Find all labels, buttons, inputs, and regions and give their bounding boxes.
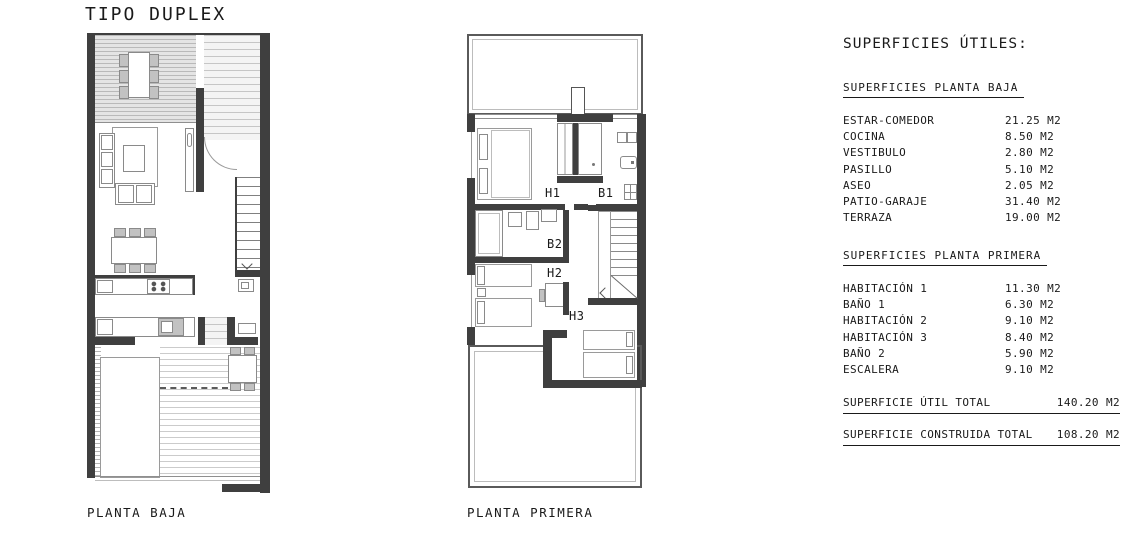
- area-value: 9.10 M2: [1005, 363, 1054, 376]
- area-row: PATIO-GARAJE31.40 M2: [843, 193, 1120, 209]
- room-label-h2: H2: [547, 266, 562, 280]
- patio-chair: [244, 383, 255, 391]
- dining-chair: [114, 264, 126, 273]
- wall-under-stairs: [235, 270, 260, 277]
- area-value: 2.80 M2: [1005, 146, 1054, 159]
- patio-chair: [244, 347, 255, 355]
- window-h2: [467, 275, 475, 327]
- nightstand: [477, 288, 486, 297]
- dining-table: [111, 237, 157, 264]
- area-label: HABITACIÓN 3: [843, 331, 1005, 344]
- wall-right: [260, 33, 270, 493]
- sink-basin: [161, 321, 173, 333]
- plot-boundary: [95, 476, 260, 477]
- sofa-cushion: [101, 135, 113, 150]
- shower-drain: [592, 163, 595, 166]
- area-row: COCINA8.50 M2: [843, 128, 1120, 144]
- bathtub-inner: [478, 213, 500, 254]
- wall-top: [95, 33, 260, 35]
- area-value: 6.30 M2: [1005, 298, 1054, 311]
- areas-panel: SUPERFICIES ÚTILES: SUPERFICIES PLANTA B…: [843, 36, 1120, 446]
- area-row: ASEO2.05 M2: [843, 177, 1120, 193]
- area-row: BAÑO 25.90 M2: [843, 345, 1120, 361]
- area-row: BAÑO 16.30 M2: [843, 296, 1120, 312]
- entry-door-swing-arc: [204, 137, 237, 170]
- b1-faucet: [631, 161, 634, 164]
- hall-paving: [205, 317, 227, 345]
- area-label: BAÑO 2: [843, 347, 1005, 360]
- b1-toilet: [624, 184, 637, 200]
- wall-core-bottom: [557, 176, 603, 183]
- area-label: ESTAR-COMEDOR: [843, 114, 1005, 127]
- area-label: PATIO-GARAJE: [843, 195, 1005, 208]
- desk: [545, 283, 565, 307]
- fridge: [97, 280, 113, 293]
- b1-cabinet: [617, 132, 627, 143]
- area-row: HABITACIÓN 111.30 M2: [843, 280, 1120, 296]
- area-value: 5.90 M2: [1005, 347, 1054, 360]
- patio-chair: [230, 383, 241, 391]
- pillow: [479, 134, 488, 160]
- pillow: [477, 266, 485, 285]
- area-label: BAÑO 1: [843, 298, 1005, 311]
- area-row: TERRAZA19.00 M2: [843, 210, 1120, 226]
- wardrobe: [557, 123, 573, 175]
- total-util-label: SUPERFICIE ÚTIL TOTAL: [843, 396, 990, 409]
- section-rows-baja: ESTAR-COMEDOR21.25 M2 COCINA8.50 M2 VEST…: [843, 112, 1120, 226]
- total-util-value: 140.20 M2: [1057, 396, 1120, 409]
- washbasin: [238, 323, 256, 334]
- pillow: [477, 301, 485, 324]
- shower: [578, 123, 602, 175]
- terrace-chair: [149, 70, 159, 83]
- area-value: 2.05 M2: [1005, 179, 1054, 192]
- cooktop: [147, 279, 170, 294]
- sofa-cushion: [101, 169, 113, 184]
- sofa-cushion: [136, 185, 152, 203]
- total-construida-value: 108.20 M2: [1057, 428, 1120, 441]
- area-row: PASILLO5.10 M2: [843, 161, 1120, 177]
- area-value: 8.50 M2: [1005, 130, 1054, 143]
- dining-chair: [114, 228, 126, 237]
- dining-chair: [129, 264, 141, 273]
- b1-sink: [620, 156, 637, 169]
- gate-wall: [222, 484, 260, 492]
- section-rows-primera: HABITACIÓN 111.30 M2 BAÑO 16.30 M2 HABIT…: [843, 280, 1120, 378]
- area-row: ESTAR-COMEDOR21.25 M2: [843, 112, 1120, 128]
- wall-hall: [198, 317, 205, 345]
- area-label: HABITACIÓN 2: [843, 314, 1005, 327]
- plan-baja-label: PLANTA BAJA: [87, 505, 186, 520]
- area-label: TERRAZA: [843, 211, 1005, 224]
- garage-dashed-line: [160, 387, 228, 389]
- b2-sink: [508, 212, 522, 227]
- area-row: VESTIBULO2.80 M2: [843, 145, 1120, 161]
- b1-cabinet: [627, 132, 637, 143]
- terrace-chair: [149, 86, 159, 99]
- toilet-bowl: [241, 282, 249, 289]
- sheet-title: TIPO DUPLEX: [85, 4, 226, 25]
- section-heading-baja: SUPERFICIES PLANTA BAJA: [843, 81, 1024, 98]
- parking-space: [100, 357, 160, 478]
- terrace-table: [128, 52, 150, 98]
- plan-primera-label: PLANTA PRIMERA: [467, 505, 593, 520]
- total-construida-label: SUPERFICIE CONSTRUIDA TOTAL: [843, 428, 1033, 441]
- terrace-roof-inner-line: [472, 39, 638, 110]
- pillow: [626, 356, 633, 374]
- wall-h3-left: [543, 330, 552, 383]
- door-handle: [187, 133, 192, 147]
- wall-b2-right: [563, 210, 569, 258]
- patio-chair: [230, 347, 241, 355]
- dining-chair: [144, 228, 156, 237]
- stair-diagonal: [611, 275, 638, 299]
- pillow: [626, 332, 633, 347]
- room-label-b1: B1: [598, 186, 613, 200]
- plot-boundary-inner: [95, 480, 260, 481]
- area-value: 5.10 M2: [1005, 163, 1054, 176]
- coffee-table: [123, 145, 145, 172]
- pillow: [479, 168, 488, 194]
- b2-toilet: [526, 211, 539, 230]
- area-row: HABITACIÓN 29.10 M2: [843, 313, 1120, 329]
- b2-basin: [541, 209, 557, 222]
- area-row: ESCALERA9.10 M2: [843, 362, 1120, 378]
- dining-chair: [129, 228, 141, 237]
- sofa-cushion: [101, 152, 113, 167]
- section-heading-primera: SUPERFICIES PLANTA PRIMERA: [843, 249, 1047, 266]
- area-value: 31.40 M2: [1005, 195, 1061, 208]
- area-value: 21.25 M2: [1005, 114, 1061, 127]
- plan-planta-primera: H1 B1 B2 H2 H3 PLANTA PRIMERA: [465, 30, 647, 530]
- total-construida: SUPERFICIE CONSTRUIDA TOTAL 108.20 M2: [843, 428, 1120, 446]
- dishwasher: [97, 319, 113, 335]
- room-label-b2: B2: [547, 237, 562, 251]
- mattress: [491, 130, 530, 198]
- plan-planta-baja: PLANTA BAJA: [85, 30, 272, 530]
- facade-line: [467, 114, 643, 115]
- area-label: ESCALERA: [843, 363, 1005, 376]
- terrace-living-divider: [95, 122, 196, 123]
- staircase-up: [611, 211, 637, 277]
- entry-porch-decking: [204, 35, 260, 140]
- patio-table: [228, 355, 257, 383]
- room-label-h3: H3: [569, 309, 584, 323]
- wall-b2-h2-divider: [475, 257, 569, 263]
- area-row: HABITACIÓN 38.40 M2: [843, 329, 1120, 345]
- wall-vestibule: [196, 88, 204, 192]
- chimney: [571, 87, 585, 116]
- sofa-cushion: [118, 185, 134, 203]
- area-value: 11.30 M2: [1005, 282, 1061, 295]
- area-label: VESTIBULO: [843, 146, 1005, 159]
- area-value: 19.00 M2: [1005, 211, 1061, 224]
- wall-aseo-bottom: [227, 337, 258, 345]
- staircase-down: [235, 177, 260, 270]
- total-util: SUPERFICIE ÚTIL TOTAL 140.20 M2: [843, 396, 1120, 414]
- room-label-h1: H1: [545, 186, 560, 200]
- area-label: ASEO: [843, 179, 1005, 192]
- facade-line-2: [467, 118, 643, 119]
- window-h1: [467, 132, 475, 178]
- area-label: HABITACIÓN 1: [843, 282, 1005, 295]
- wall-left: [87, 33, 95, 478]
- areas-title: SUPERFICIES ÚTILES:: [843, 36, 1120, 52]
- area-label: PASILLO: [843, 163, 1005, 176]
- wall-h3-bottom: [543, 380, 642, 388]
- wall-top-center: [557, 114, 613, 122]
- wall-kitchen-end: [95, 337, 135, 345]
- area-label: COCINA: [843, 130, 1005, 143]
- wall-stairs-bottom: [588, 298, 637, 305]
- area-value: 9.10 M2: [1005, 314, 1054, 327]
- dining-chair: [144, 264, 156, 273]
- terrace-chair: [149, 54, 159, 67]
- area-value: 8.40 M2: [1005, 331, 1054, 344]
